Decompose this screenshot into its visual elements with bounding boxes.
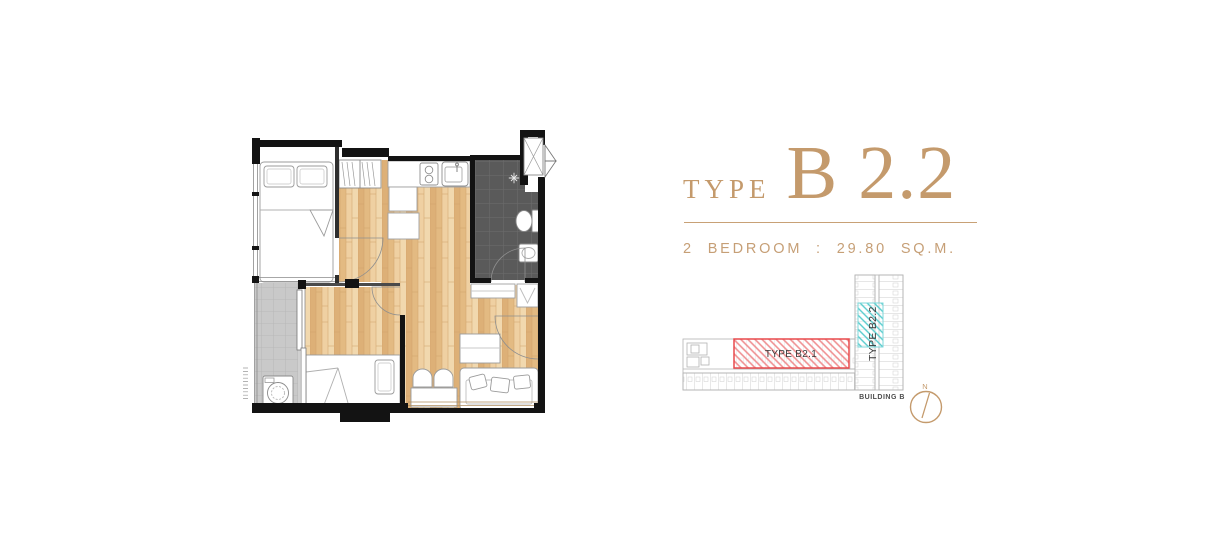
refrigerator <box>388 213 419 239</box>
louver-screen <box>243 368 248 399</box>
bedroom2-floor <box>305 287 400 355</box>
floor-plan-drawing <box>238 120 560 422</box>
floor-plan <box>238 120 560 422</box>
tv-cabinet <box>460 334 500 363</box>
title-divider <box>684 222 977 223</box>
hallway-floor <box>339 188 381 282</box>
compass: N <box>911 382 942 423</box>
compass-needle-icon <box>922 393 930 418</box>
sliding-door-panel <box>297 290 302 350</box>
title-unit-name: B 2.2 <box>787 135 957 211</box>
unit-spec: 2 BEDROOM : 29.80 SQ.M. <box>683 241 956 257</box>
dining-table <box>411 388 457 407</box>
toilet-icon <box>516 211 532 232</box>
unit-b21-label: TYPE B2.1 <box>765 349 817 360</box>
unit-b22-label: TYPE B2.2 <box>867 306 879 361</box>
sliding-door-panel <box>301 348 306 408</box>
building-key-plan-drawing: TYPE B2.1 TYPE B2.2 BUILDING B N <box>670 265 960 425</box>
building-key-plan: TYPE B2.1 TYPE B2.2 BUILDING B N <box>670 265 960 425</box>
entry-door-mark <box>545 161 556 177</box>
title-type-label: TYPE <box>683 176 771 203</box>
dining-chair <box>434 369 453 387</box>
building-label: BUILDING B <box>859 394 905 401</box>
unit-header: TYPE B 2.2 <box>683 135 956 211</box>
page: TYPE B 2.2 2 BEDROOM : 29.80 SQ.M. <box>0 0 1220 549</box>
compass-north-label: N <box>922 382 927 391</box>
dining-chair <box>413 369 432 387</box>
compass-circle <box>911 392 942 423</box>
entry-door-mark <box>545 145 556 161</box>
entry <box>524 138 556 177</box>
unit-title: TYPE B 2.2 <box>683 135 956 211</box>
kitchen-cabinet <box>389 187 417 211</box>
